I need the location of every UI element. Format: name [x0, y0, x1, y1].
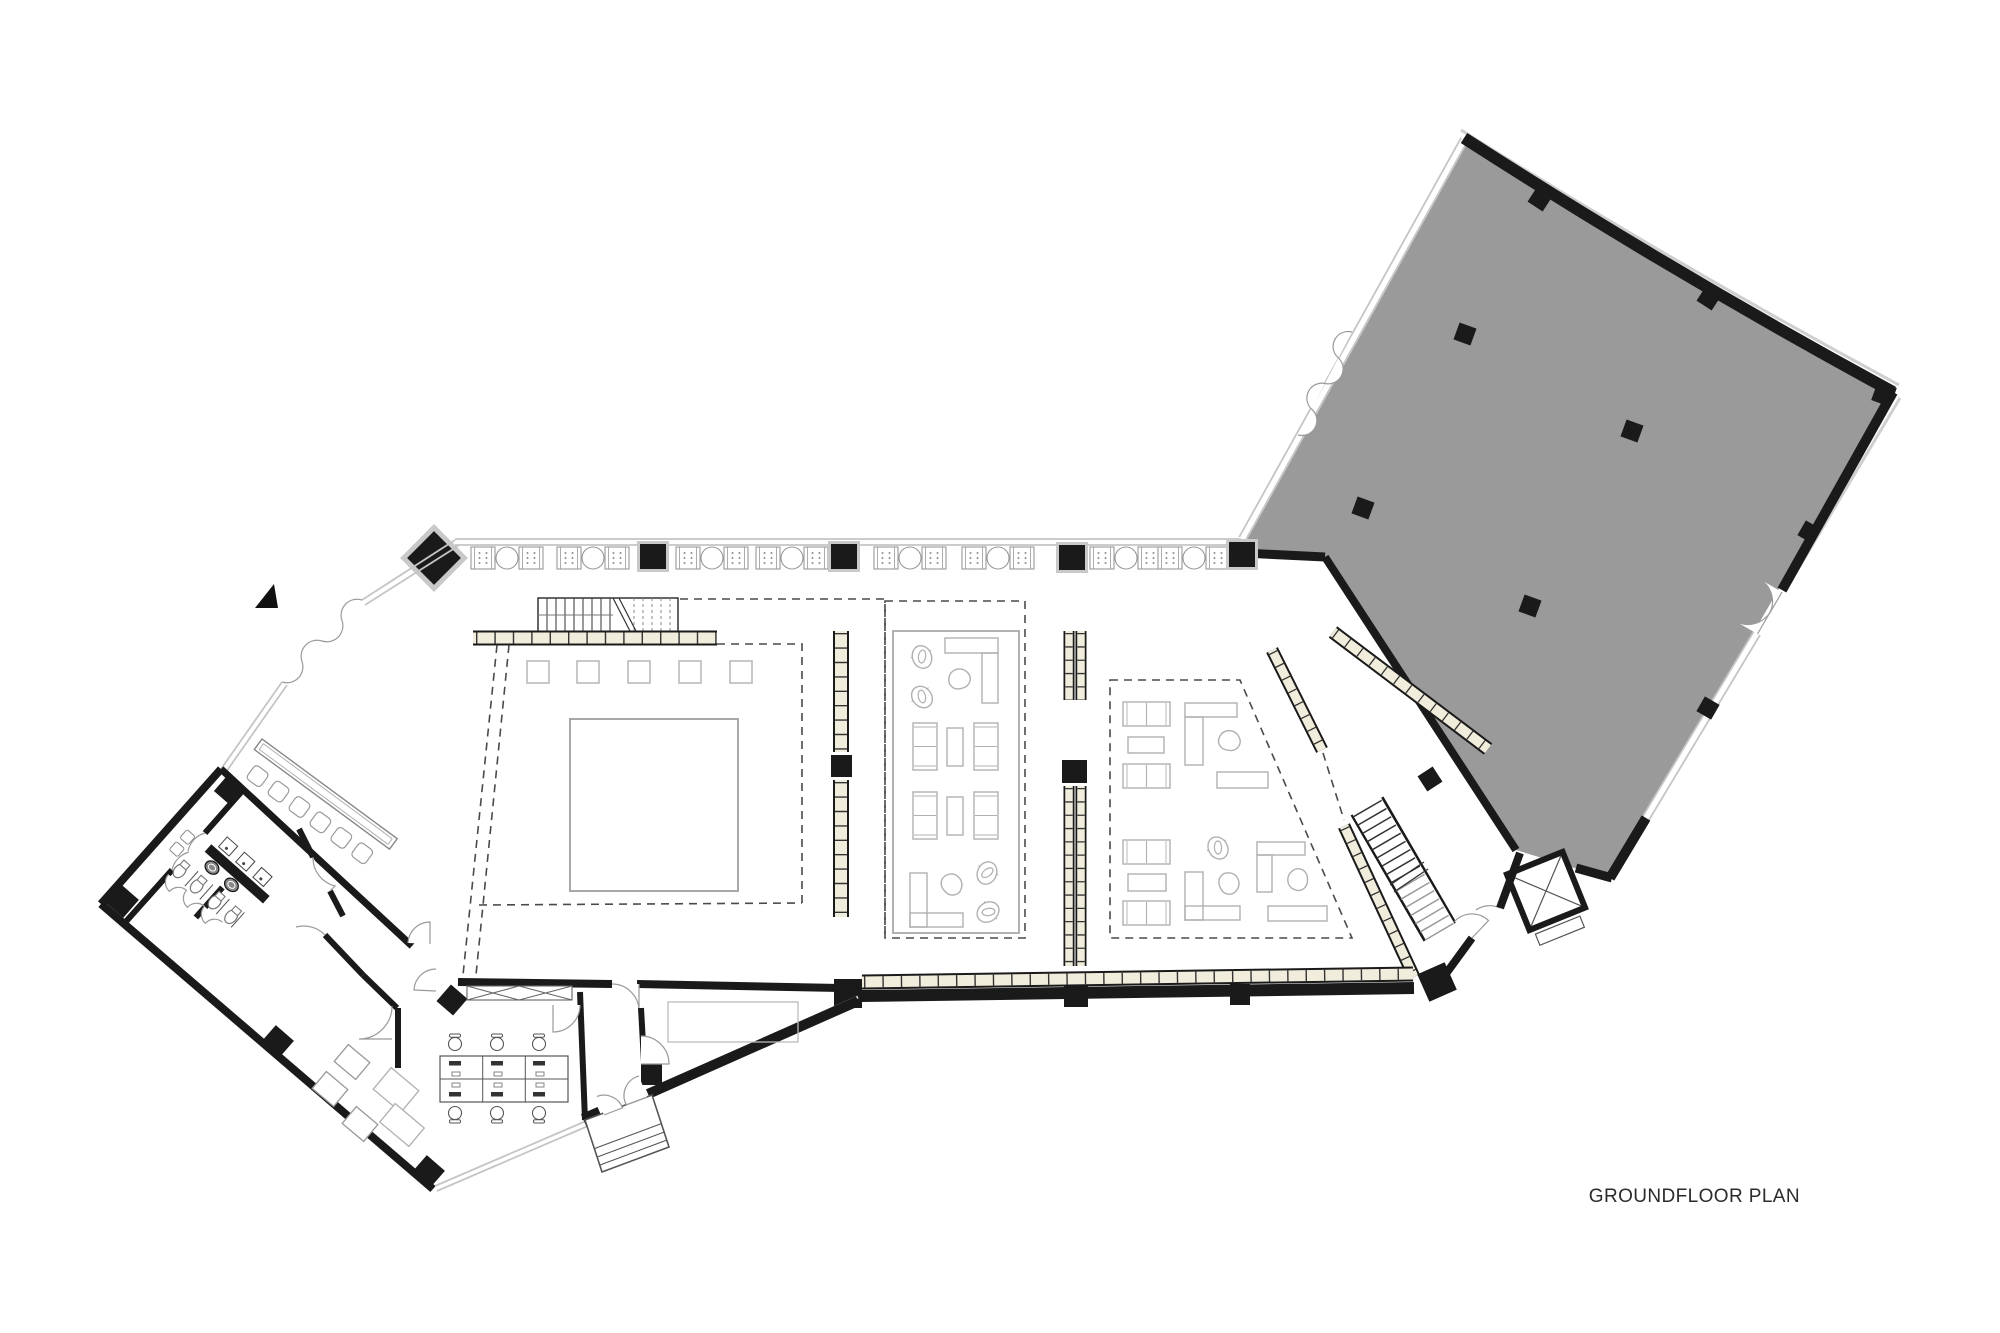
exhibition-hall	[1237, 130, 1900, 947]
stage-square	[570, 719, 738, 891]
wardrobe-counter	[467, 986, 572, 1000]
window-strip	[400, 524, 1258, 592]
lounge-middle	[885, 601, 1025, 938]
rack-right	[1062, 631, 1087, 966]
upper-stair	[538, 598, 678, 633]
plan-title: GROUNDFLOOR PLAN	[1490, 1186, 1800, 1208]
lounge-right	[1110, 680, 1352, 938]
floorplan-page: GROUNDFLOOR PLAN	[0, 0, 2000, 1333]
event-hall	[463, 598, 885, 975]
office-desks	[440, 1034, 568, 1123]
ceiling-squares	[527, 661, 752, 683]
north-arrow-icon	[255, 584, 278, 608]
se-stair	[1344, 803, 1442, 977]
side-entrance-doors	[282, 599, 362, 683]
office-sofas	[312, 1045, 424, 1147]
floorplan-drawing	[0, 0, 2000, 1333]
strip-end-column	[400, 524, 468, 592]
rack-left	[831, 631, 852, 917]
